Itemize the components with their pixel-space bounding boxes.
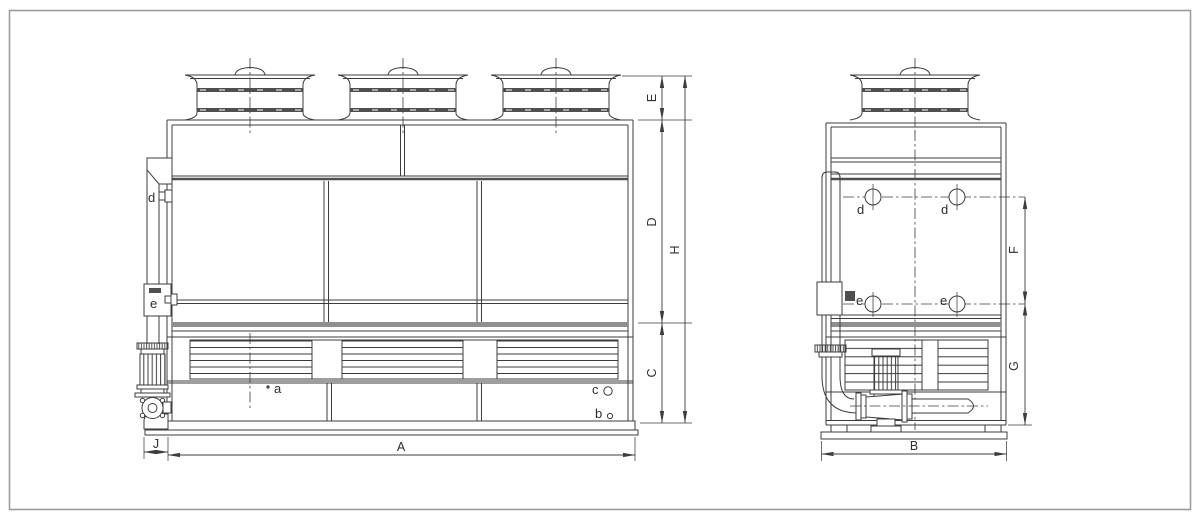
part-label-e-right: e [940,293,947,308]
front-louvers [167,333,633,408]
front-pump [135,343,171,419]
pump-motor [140,354,165,385]
dim-label-F: F [1007,246,1021,254]
pump-volute-side [866,394,904,420]
dim-label-B: B [910,439,918,453]
wall-port [845,291,855,301]
front-fan-cowls [185,58,621,134]
front-part-labels: d e a c b [148,190,613,421]
side-connection-markers: d d e e [843,184,1025,317]
dim-label-G: G [1007,361,1021,371]
part-label-d-left: d [857,202,864,217]
part-label-e-left: e [856,293,863,308]
pump-motor-side [874,356,898,390]
side-base [821,421,1007,440]
side-view: d d e e F G B [815,58,1032,461]
dim-label-C: C [645,368,659,377]
part-label-b: b [595,406,602,421]
part-label-d: d [148,190,155,205]
part-marker-a [266,385,269,388]
part-marker-c [604,387,612,395]
front-basin [167,383,633,421]
dim-label-A: A [397,440,406,454]
dim-label-H: H [668,245,682,254]
part-label-c: c [592,382,599,397]
front-view: d e a c b E D C H J A [135,58,692,461]
dim-label-D: D [645,217,659,226]
drawing-sheet: d e a c b E D C H J A [0,0,1200,520]
dim-label-J: J [153,437,159,451]
front-dimensions: E D C H J A [144,76,692,461]
side-louvers [826,337,1006,392]
part-label-d-right: d [941,202,948,217]
dim-label-E: E [645,94,659,102]
part-label-a: a [274,381,282,396]
part-marker-b [607,413,612,418]
cooling-tower-technical-drawing: d e a c b E D C H J A [0,0,1200,520]
side-dimensions: F G B [822,197,1033,461]
front-base [144,414,638,435]
part-label-e: e [150,296,157,311]
